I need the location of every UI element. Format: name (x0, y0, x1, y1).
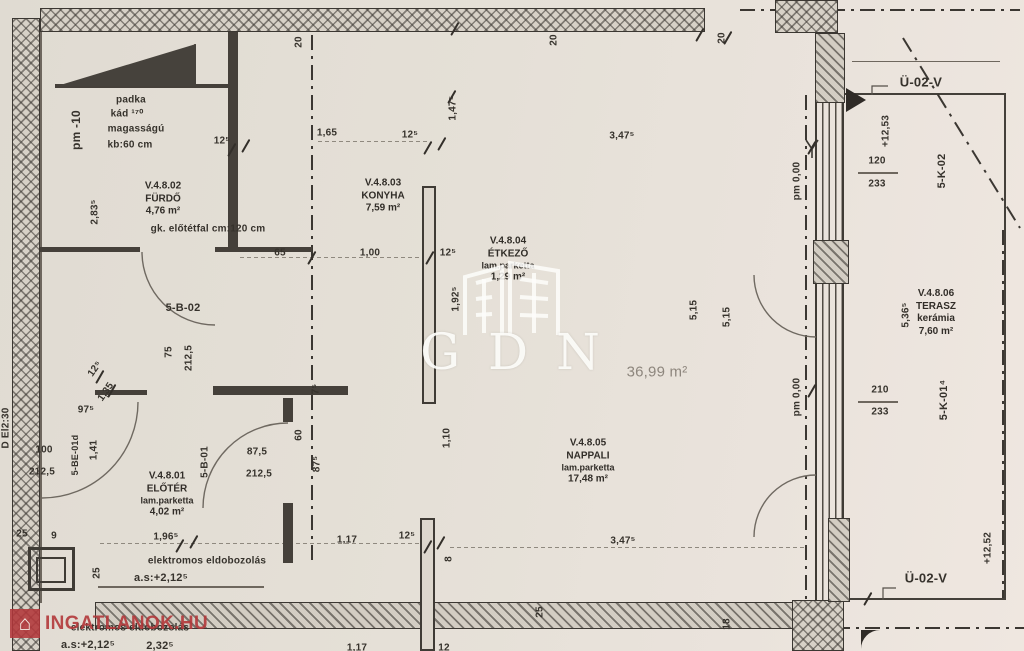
room-label-furdo: V.4.8.02 FÜRDŐ 4,76 m² (145, 180, 181, 218)
dimension-label: 3,47⁵ (609, 131, 634, 142)
dimension-label: 212,5 (184, 345, 195, 371)
dimension-label: 3,47⁵ (610, 536, 635, 547)
room-area: 1,29 m² (481, 272, 534, 285)
column-bottom-right (792, 600, 844, 651)
dimension-label: 8 (444, 556, 455, 562)
level-pm-minus10: pm -10 (69, 110, 83, 150)
room-floor: lam.parketta (481, 261, 534, 272)
room-label-nappali: V.4.8.05 NAPPALI lam.parketta 17,48 m² (561, 438, 614, 487)
dimension-label: 20 (294, 36, 305, 48)
dimension-label: 65 (274, 248, 286, 259)
corner-mark (861, 630, 880, 649)
note-padka: padka (116, 95, 146, 106)
code-5-k-02: 5-K-02 (936, 154, 948, 189)
wall-padka-edge (55, 84, 231, 88)
room-label-etkezo: V.4.8.04 ÉTKEZŐ lam.parketta 1,29 m² (481, 236, 534, 285)
room-name: ÉTKEZŐ (481, 248, 534, 261)
dimension-label: 9 (51, 531, 57, 542)
room-label-eloter: V.4.8.01 ELŐTÉR lam.parketta 4,02 m² (140, 471, 193, 520)
room-name: KONYHA (361, 190, 404, 203)
room-code: V.4.8.02 (145, 180, 181, 193)
room-name: ELŐTÉR (140, 483, 193, 496)
axis-vertical-center (311, 35, 313, 563)
dim-line (240, 257, 425, 258)
wall-top (40, 8, 705, 32)
note-elektromos-1: elektromos eldobozolás (148, 556, 266, 567)
wall-top-right-chunk (775, 0, 838, 33)
dimension-label: 212,5 (29, 467, 55, 478)
wall-furdo-bottom-left (40, 247, 140, 252)
dimension-label: 5,15 (689, 300, 700, 320)
dim-tick (436, 536, 446, 550)
dimension-label: 5,15 (722, 307, 733, 327)
open-space-area: 36,99 m² (627, 364, 688, 381)
electric-box-inner (36, 557, 66, 583)
dimension-label: 1,10 (442, 428, 453, 448)
code-5-k-01: 5-K-01⁴ (938, 380, 950, 420)
dimension-label: 12 (438, 643, 450, 651)
code-u-02-v-top: Ü-02-V (900, 75, 942, 90)
room-area: 17,48 m² (561, 474, 614, 487)
door-arc-eloter (203, 423, 288, 508)
code-u-02-v-bottom: Ü-02-V (905, 571, 947, 586)
dimension-label: 1,65 (317, 128, 337, 139)
dimension-label: 12⁵ (214, 136, 230, 147)
window-fraction-2 (858, 401, 898, 403)
floor-plan: V.4.8.02 FÜRDŐ 4,76 m² V.4.8.03 KONYHA 7… (0, 0, 1024, 651)
door-arc-furdo (142, 252, 215, 325)
room-floor: lam.parketta (561, 463, 614, 474)
dimension-label: 1,17 (347, 643, 367, 651)
mullion-lower (828, 518, 850, 602)
dimension-label: 1,17 (337, 535, 357, 546)
room-floor: lam.parketta (140, 496, 193, 507)
partition-bottom (420, 518, 435, 651)
mullion-top (815, 33, 845, 103)
room-code: V.4.8.01 (140, 471, 193, 484)
room-area: 7,60 m² (916, 326, 956, 339)
dimension-label: 87,5 (247, 447, 267, 458)
room-code: V.4.8.06 (916, 288, 956, 301)
dimension-label: 7⁵ (311, 384, 322, 395)
code-d-el230: D El2:30 (1, 407, 12, 448)
room-label-terasz: V.4.8.06 TERASZ kerámia 7,60 m² (916, 288, 956, 338)
note-kb60: kb:60 cm (108, 140, 153, 151)
section-line-diagonal (903, 38, 1020, 228)
gdn-watermark: GDN (420, 323, 628, 381)
code-5-b-01: 5-B-01 (200, 446, 211, 478)
dimension-label: 87⁵ (312, 456, 323, 472)
dimension-label: 12⁵ (440, 248, 456, 259)
dimension-label: 1,92⁵ (451, 286, 462, 311)
dimension-label: 25 (92, 567, 103, 579)
terrace-upper-line (852, 61, 1000, 62)
dimension-label: 1,96⁵ (153, 532, 178, 543)
note-gk-elotetfal: gk. előtétfal cm:120 cm (151, 224, 266, 235)
terrace-right-edge (1004, 93, 1006, 600)
dimension-label: 233 (871, 407, 888, 418)
dimension-label: 1,00 (360, 248, 380, 259)
dim-tick (241, 139, 251, 153)
portal-watermark: ⌂ INGATLANOK.HU (10, 609, 208, 638)
section-line-right (805, 95, 807, 600)
note-kad: kád ¹⁷⁰ (111, 109, 144, 120)
wall-left-face (40, 32, 42, 603)
dimension-label: 2,83⁵ (90, 199, 101, 224)
house-icon: ⌂ (10, 609, 40, 638)
dimension-label: 75 (164, 346, 175, 358)
level-1253: +12,53 (881, 115, 892, 147)
window-fraction-1 (858, 172, 898, 174)
dimension-label: 5,36⁵ (901, 302, 912, 327)
wall-furdo-bottom-right (215, 247, 312, 252)
dim-tick (189, 535, 199, 549)
dimension-label: 100 (35, 445, 52, 456)
room-name: TERASZ (916, 301, 956, 314)
code-5-be-01d: 5-BE-01d (70, 435, 80, 476)
room-area: 7,59 m² (361, 202, 404, 215)
portal-watermark-text: INGATLANOK.HU (45, 613, 208, 635)
room-label-konyha: V.4.8.03 KONYHA 7,59 m² (361, 177, 404, 215)
dim-line (450, 547, 805, 548)
dimension-label: 97⁵ (78, 405, 94, 416)
dimension-label: 25 (535, 606, 546, 618)
room-area: 4,76 m² (145, 205, 181, 218)
room-name: FÜRDŐ (145, 193, 181, 206)
dim-line (318, 141, 430, 142)
dimension-label: 1,41 (89, 440, 100, 460)
wall-face-bottom (98, 586, 264, 588)
dimension-label: 233 (868, 179, 885, 190)
code-5-b-02: 5-B-02 (166, 302, 201, 314)
ramp-wedge (57, 44, 196, 86)
dimension-label: 25 (16, 529, 28, 540)
dimension-label: 210 (871, 385, 888, 396)
dimension-label: 120 (868, 156, 885, 167)
dim-line (100, 543, 420, 544)
mullion-middle (813, 240, 849, 284)
wall-eloter-side (283, 503, 293, 563)
room-code: V.4.8.05 (561, 438, 614, 451)
dimension-label: 12⁵ (399, 531, 415, 542)
level-pm-000-upper: pm 0,00 (792, 162, 803, 201)
dim-tick (437, 137, 447, 151)
note-elektromos-level-2: a.s:+2,12⁵ (61, 639, 115, 651)
section-line-bottom-right (835, 627, 1024, 629)
level-1252: +12,52 (983, 532, 994, 564)
dimension-label: 20 (549, 34, 560, 46)
room-name: NAPPALI (561, 450, 614, 463)
room-floor: kerámia (916, 313, 956, 326)
note-elektromos-level-1: a.s:+2,12⁵ (134, 572, 188, 584)
dimension-label: 12⁵ (402, 130, 418, 141)
dimension-label: 212,5 (246, 469, 272, 480)
room-code: V.4.8.04 (481, 236, 534, 249)
note-magassagu: magasságú (108, 124, 165, 135)
wall-eloter-top-right (213, 386, 348, 395)
room-code: V.4.8.03 (361, 177, 404, 190)
level-pm-000-lower: pm 0,00 (792, 378, 803, 417)
dimension-label: 2,32⁵ (146, 640, 174, 651)
dimension-label: 18 (722, 618, 733, 630)
section-flag (846, 88, 866, 112)
wall-stub-door (283, 398, 293, 422)
terrace-top-edge (845, 93, 1006, 95)
dimension-label: 60 (294, 429, 305, 441)
wedge-edge (194, 44, 196, 86)
dim-tick (423, 141, 433, 155)
room-area: 4,02 m² (140, 507, 193, 520)
